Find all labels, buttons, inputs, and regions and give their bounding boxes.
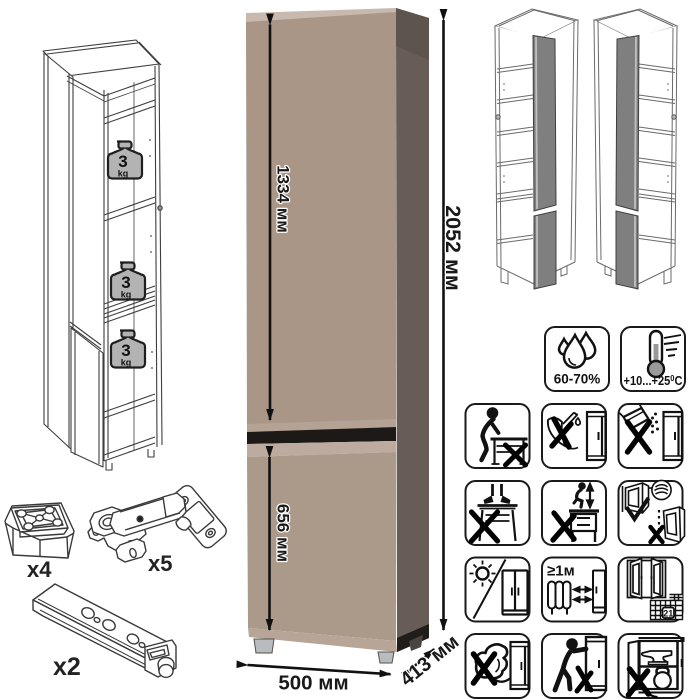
svg-text:+10...+250C: +10...+250C	[624, 373, 683, 388]
svg-text:x2: x2	[53, 653, 81, 681]
svg-text:60-70%: 60-70%	[554, 372, 601, 387]
svg-text:x5: x5	[148, 551, 172, 576]
svg-text:21: 21	[663, 608, 673, 618]
svg-text:656 мм: 656 мм	[274, 504, 293, 562]
svg-text:kg: kg	[118, 169, 129, 179]
svg-text:x4: x4	[27, 557, 52, 582]
svg-text:≥1м: ≥1м	[547, 563, 575, 580]
svg-text:1334 мм: 1334 мм	[274, 165, 293, 233]
svg-text:500 мм: 500 мм	[278, 672, 348, 695]
svg-text:kg: kg	[121, 290, 132, 300]
svg-text:kg: kg	[121, 358, 132, 368]
svg-text:2052 мм: 2052 мм	[441, 205, 465, 291]
